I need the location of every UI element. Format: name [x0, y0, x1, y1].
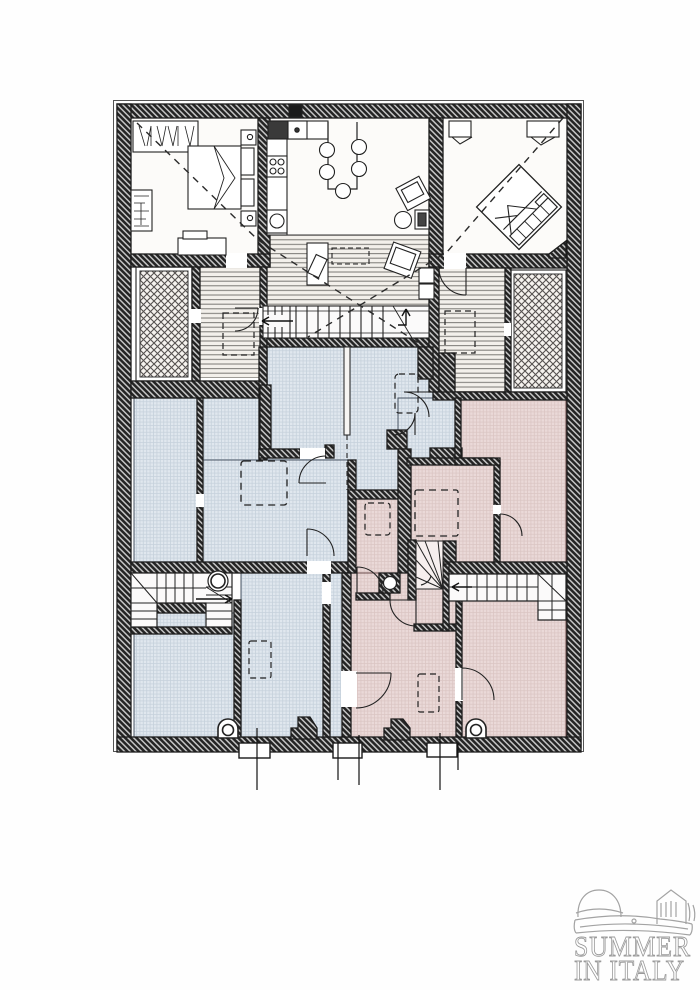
svg-text:IN ITALY: IN ITALY [574, 955, 685, 987]
